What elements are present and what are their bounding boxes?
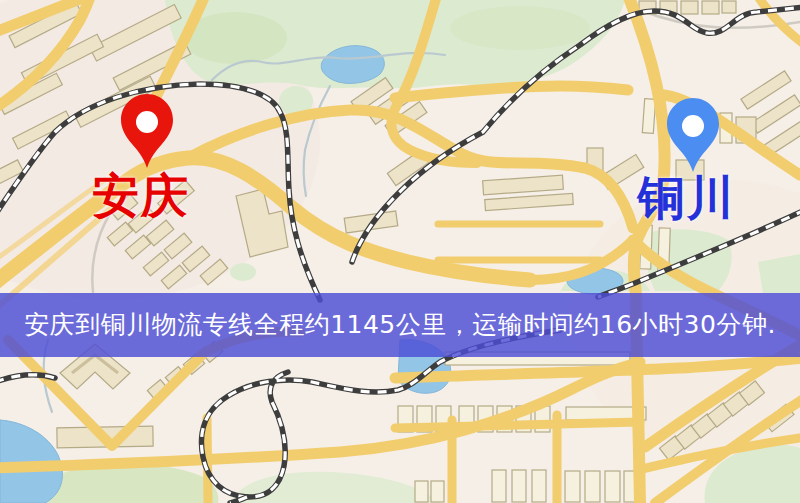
origin-city-label: 安庆 (92, 172, 190, 219)
destination-pin-hole (682, 115, 704, 137)
destination-marker-pin (667, 98, 719, 172)
route-map-page: 安庆 铜川 安庆到铜川物流专线全程约1145公里，运输时间约16小时30分钟. (0, 0, 800, 503)
map-canvas (0, 0, 800, 503)
route-info-banner: 安庆到铜川物流专线全程约1145公里，运输时间约16小时30分钟. (0, 293, 800, 357)
destination-city-label: 铜川 (638, 174, 736, 221)
origin-pin-hole (136, 111, 158, 133)
route-info-text: 安庆到铜川物流专线全程约1145公里，运输时间约16小时30分钟. (24, 310, 776, 339)
